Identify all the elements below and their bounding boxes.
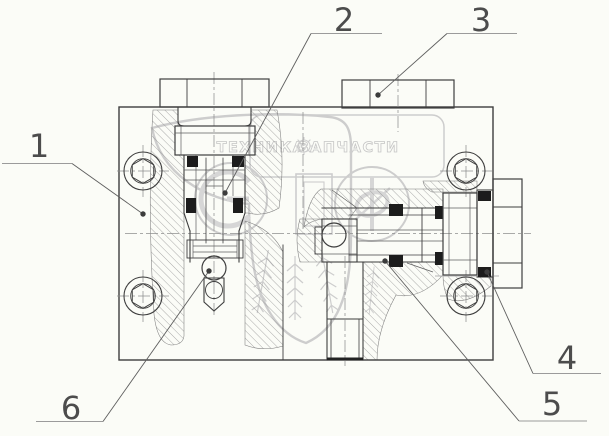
seal [435, 206, 443, 219]
callout-4-dot [484, 269, 489, 274]
poppet-seat [187, 240, 243, 258]
plug-body-right [443, 193, 477, 275]
seal [233, 198, 243, 213]
callout-4: 4 [484, 269, 601, 377]
check-ball [322, 223, 346, 247]
callout-6-dot [206, 268, 211, 273]
callout-1-label: 1 [29, 127, 49, 165]
callout-5-dot [382, 258, 387, 263]
watermark-text-right: ЗАПЧАСТИ [298, 140, 399, 156]
hex-plug-top-right [342, 74, 454, 132]
callout-3: 3 [375, 1, 517, 98]
callout-3-dot [375, 92, 380, 97]
hex-plug-top-left [160, 79, 269, 107]
seal [389, 204, 403, 216]
valve-block-sectional-drawing: ТЕХНИКА ЗАПЧАСТИ [0, 0, 609, 436]
drawing-canvas: ТЕХНИКА ЗАПЧАСТИ [0, 0, 609, 436]
callout-2-dot [222, 190, 227, 195]
seal [186, 198, 196, 213]
callout-3-leader [378, 34, 447, 96]
seal [435, 252, 443, 265]
callouts: 1 2 3 4 5 6 [2, 1, 601, 427]
callout-4-leader [487, 272, 533, 374]
callout-4-label: 4 [557, 339, 577, 377]
callout-1-dot [140, 211, 145, 216]
callout-5-label: 5 [542, 385, 562, 423]
seal [389, 255, 403, 267]
seal [187, 156, 198, 167]
seal [478, 191, 491, 201]
